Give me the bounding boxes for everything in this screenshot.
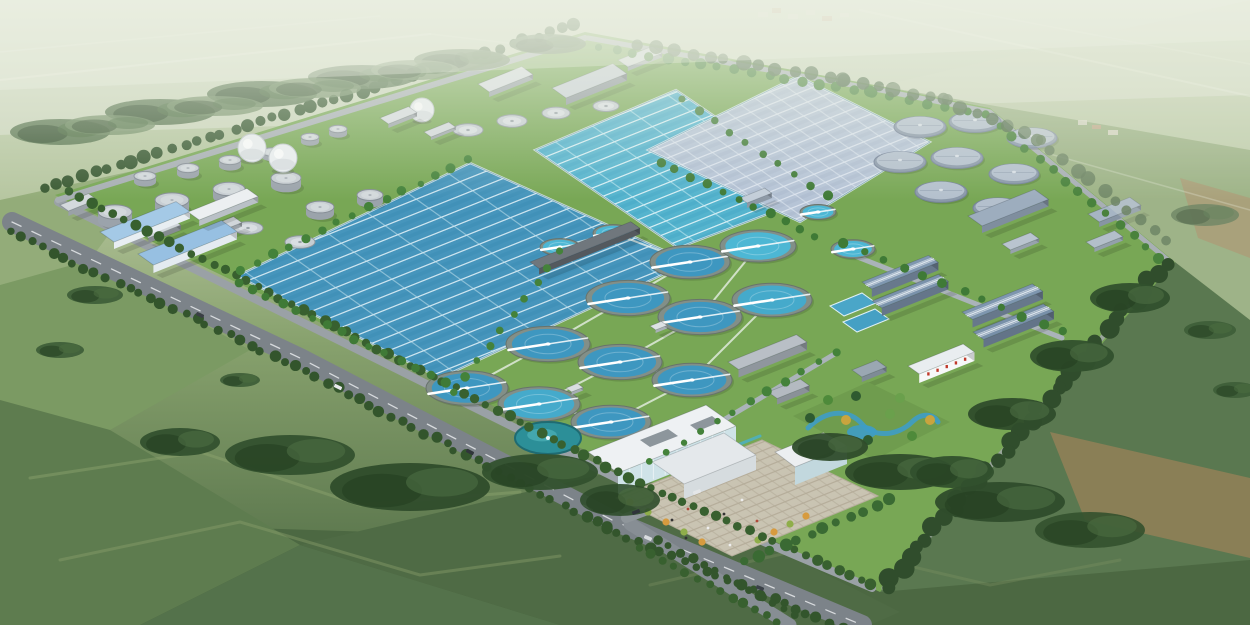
aerial-render-wastewater-plant [0,0,1250,625]
storage-tank [306,201,337,222]
scene-canvas [0,0,1250,625]
